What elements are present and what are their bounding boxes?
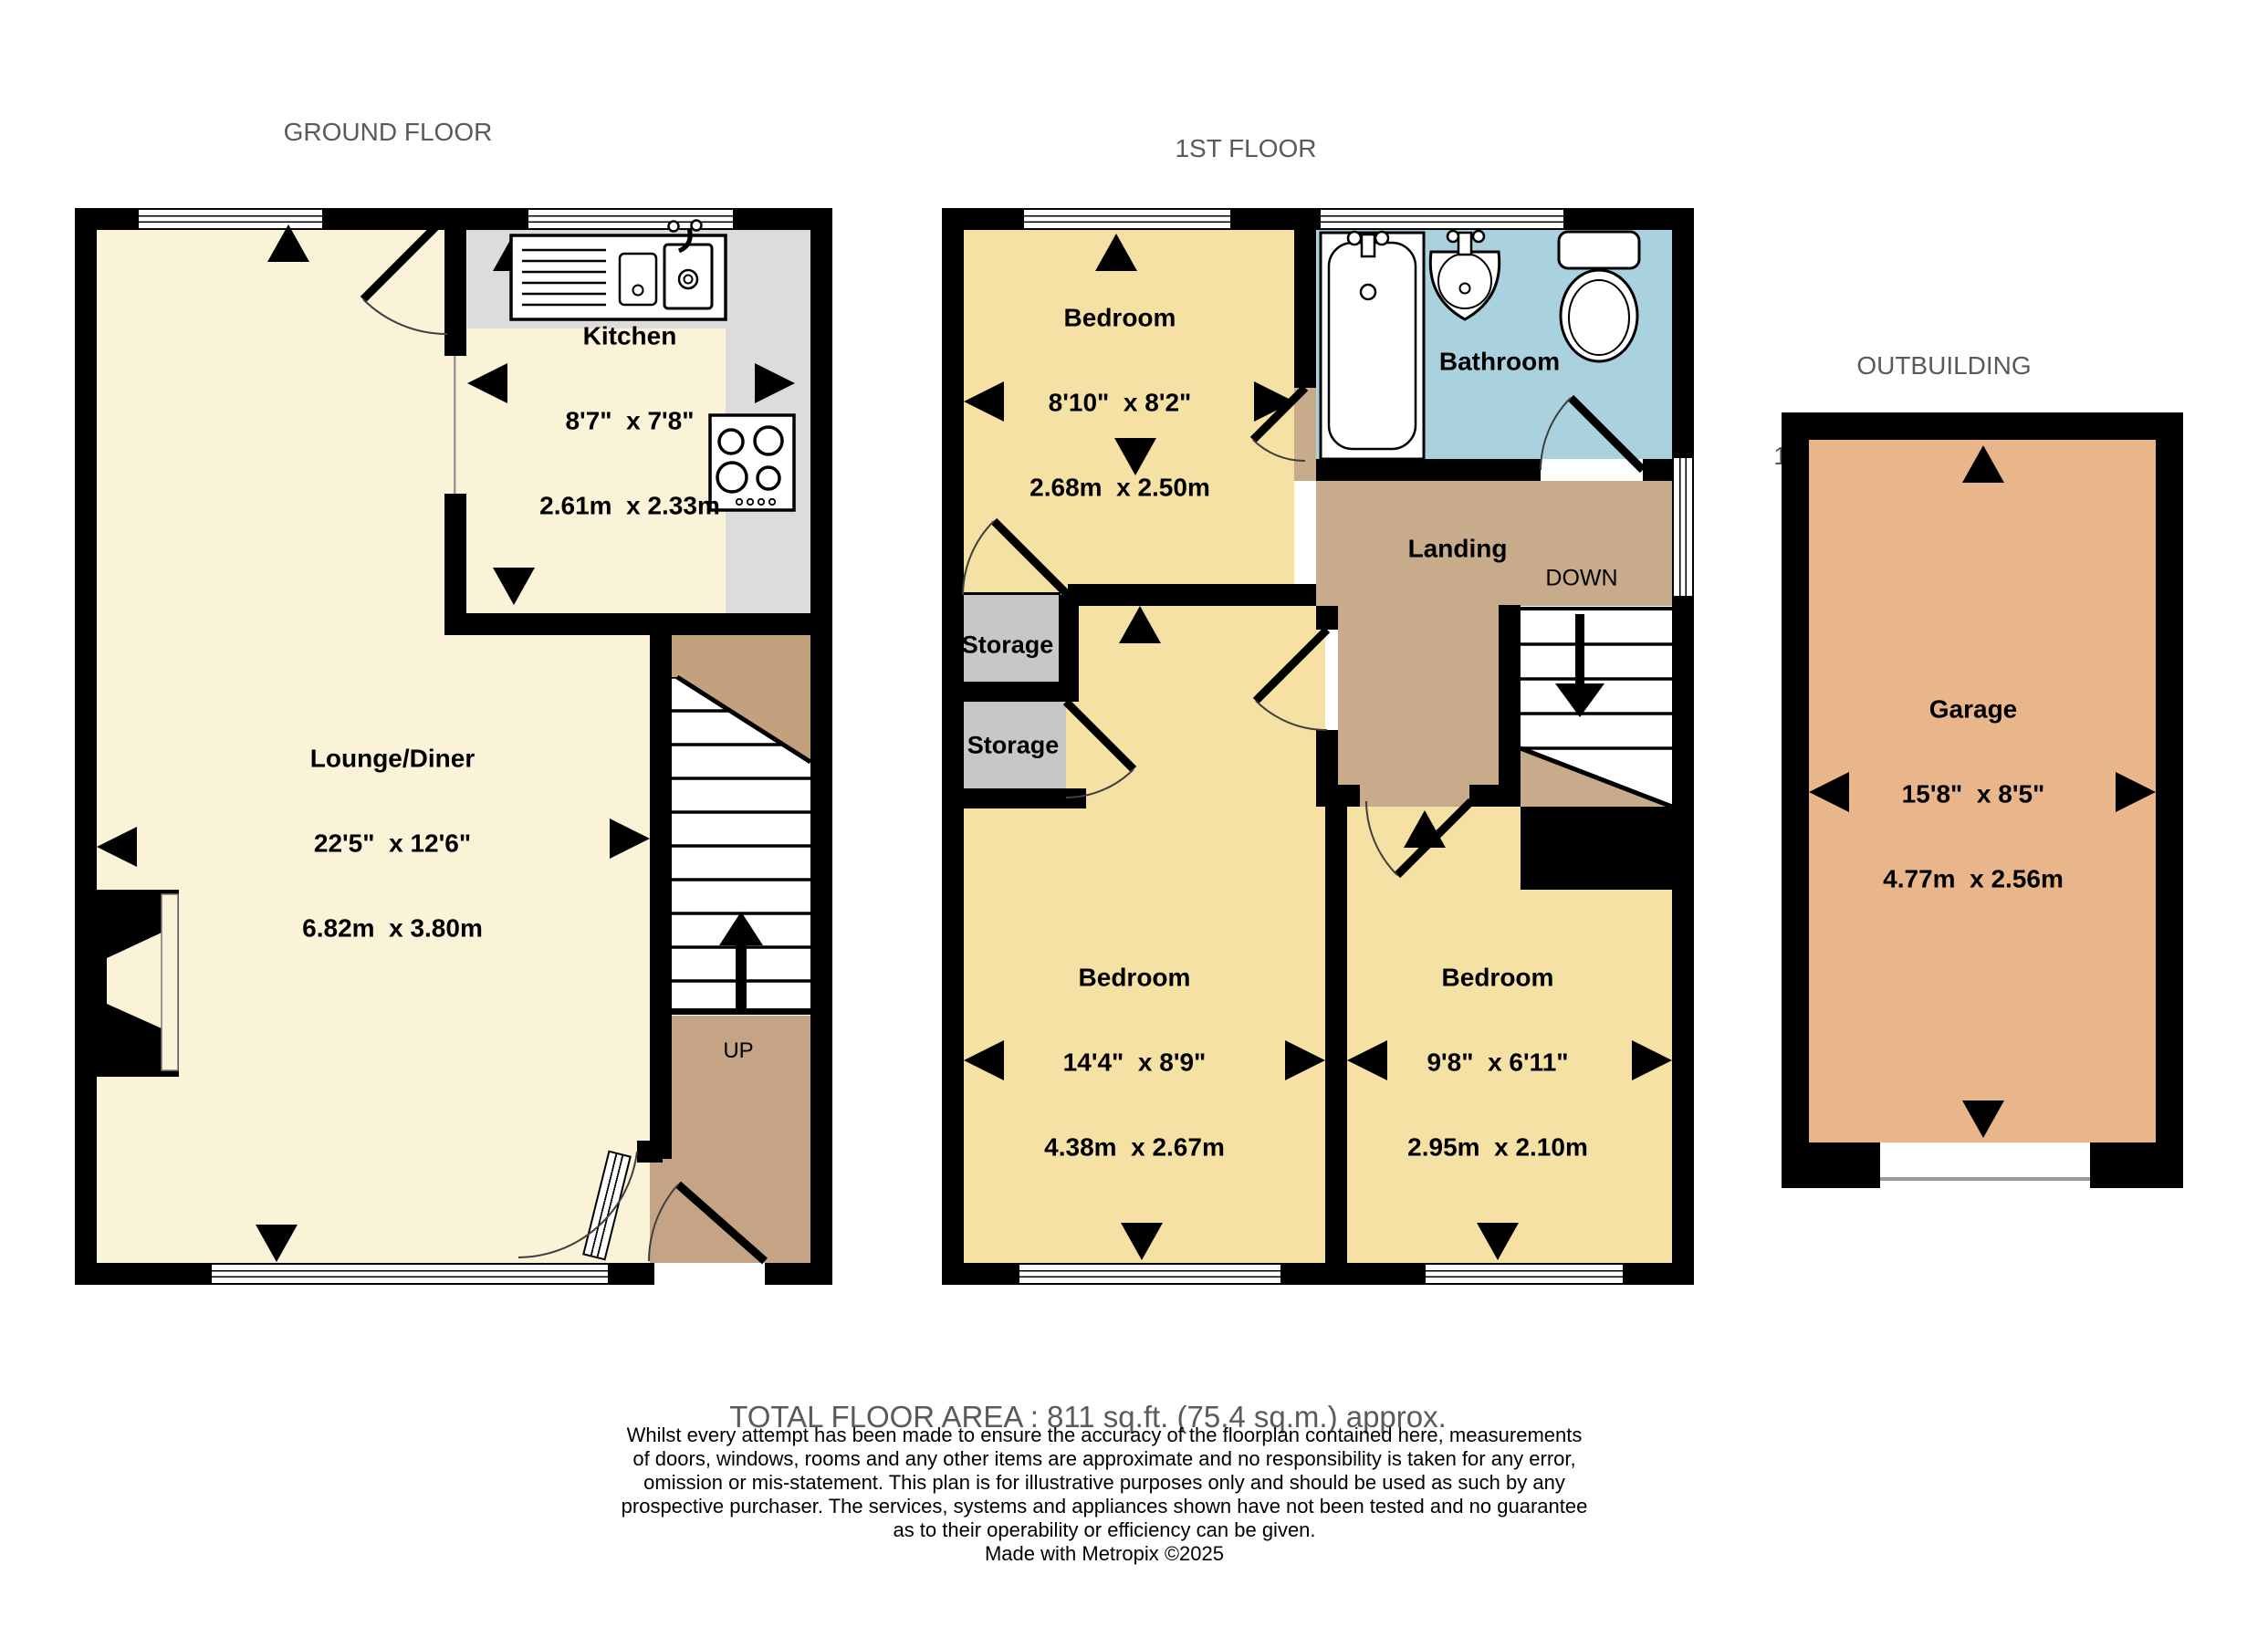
- disclaimer: Whilst every attempt has been made to en…: [511, 1424, 1698, 1566]
- stairs-up-label: UP: [723, 1038, 753, 1064]
- room-size-metric: 2.95m x 2.10m: [1407, 1133, 1588, 1162]
- disclaimer-line: prospective purchaser. The services, sys…: [511, 1495, 1698, 1518]
- room-size-imperial: 9'8" x 6'11": [1407, 1048, 1588, 1077]
- bathtub: [1321, 232, 1424, 459]
- room-name: Bedroom: [1044, 964, 1225, 992]
- kitchen-label: Kitchen 8'7" x 7'8" 2.61m x 2.33m: [539, 266, 720, 577]
- room-size-metric: 2.61m x 2.33m: [539, 492, 720, 520]
- room-size-metric: 6.82m x 3.80m: [302, 914, 483, 943]
- lounge-diner-label: Lounge/Diner 22'5" x 12'6" 6.82m x 3.80m: [302, 688, 483, 999]
- room-name: Storage: [967, 732, 1060, 760]
- garage-label: Garage 15'8" x 8'5" 4.77m x 2.56m: [1883, 639, 2064, 950]
- bedroom-door: [1256, 630, 1327, 730]
- bedroom-door: [1366, 801, 1471, 875]
- stairs-down-label: DOWN: [1545, 566, 1617, 592]
- bedroom-door: [1253, 388, 1305, 461]
- ground-floor-title-text: GROUND FLOOR: [217, 117, 559, 147]
- storage-door: [1066, 702, 1134, 798]
- room-name: Bedroom: [1407, 964, 1588, 992]
- bedroom3-label: Bedroom 9'8" x 6'11" 2.95m x 2.10m: [1407, 907, 1588, 1218]
- room-size-imperial: 8'7" x 7'8": [539, 407, 720, 435]
- toilet: [1559, 232, 1639, 361]
- floorplan-page: GROUND FLOOR 341 sq.ft. (31.6 sq.m.) app…: [0, 0, 2268, 1627]
- bedroom2-label: Bedroom 14'4" x 8'9" 4.38m x 2.67m: [1044, 907, 1225, 1218]
- room-name: Lounge/Diner: [302, 745, 483, 773]
- room-name: Kitchen: [539, 322, 720, 350]
- room-size-imperial: 8'10" x 8'2": [1029, 389, 1210, 417]
- entry-door: [649, 1184, 765, 1261]
- disclaimer-line: omission or mis-statement. This plan is …: [511, 1471, 1698, 1495]
- room-name: Landing: [1408, 535, 1508, 563]
- landing-label: Landing: [1408, 478, 1508, 620]
- disclaimer-line: of doors, windows, rooms and any other i…: [511, 1447, 1698, 1471]
- room-size-metric: 4.77m x 2.56m: [1883, 865, 2064, 893]
- room-size-imperial: 15'8" x 8'5": [1883, 780, 2064, 808]
- dimension-arrow-right-icon: [2116, 772, 2156, 812]
- first-floor-title-text: 1ST FLOOR: [1075, 133, 1416, 163]
- credit-line: Made with Metropix ©2025: [511, 1542, 1698, 1566]
- dimension-arrow-down-icon: [1962, 1100, 2004, 1138]
- lounge-door-swing: [518, 1152, 637, 1257]
- storage-label: Storage: [967, 675, 1060, 817]
- kitchen-door: [363, 215, 456, 494]
- garage-door-line: [1880, 1177, 2090, 1181]
- outbuilding-title-text: OUTBUILDING: [1773, 350, 2115, 381]
- room-name: Bathroom: [1439, 348, 1560, 376]
- dimension-arrow-up-icon: [1962, 445, 2004, 483]
- room-size-imperial: 22'5" x 12'6": [302, 829, 483, 858]
- fireplace: [97, 890, 179, 1077]
- room-size-imperial: 14'4" x 8'9": [1044, 1048, 1225, 1077]
- staircase-down: [1521, 607, 1672, 807]
- disclaimer-line: as to their operability or efficiency ca…: [511, 1518, 1698, 1542]
- bedroom1-label: Bedroom 8'10" x 8'2" 2.68m x 2.50m: [1029, 247, 1210, 558]
- dimension-arrow-left-icon: [1809, 772, 1849, 812]
- room-name: Garage: [1883, 695, 2064, 724]
- garage-door-opening: [1880, 1142, 2090, 1188]
- room-name: Storage: [962, 631, 1054, 660]
- disclaimer-line: Whilst every attempt has been made to en…: [511, 1424, 1698, 1447]
- bathroom-label: Bathroom: [1439, 291, 1560, 433]
- room-size-metric: 2.68m x 2.50m: [1029, 474, 1210, 502]
- room-size-metric: 4.38m x 2.67m: [1044, 1133, 1225, 1162]
- room-name: Bedroom: [1029, 304, 1210, 332]
- staircase-up: [672, 635, 810, 1016]
- hob: [710, 415, 794, 510]
